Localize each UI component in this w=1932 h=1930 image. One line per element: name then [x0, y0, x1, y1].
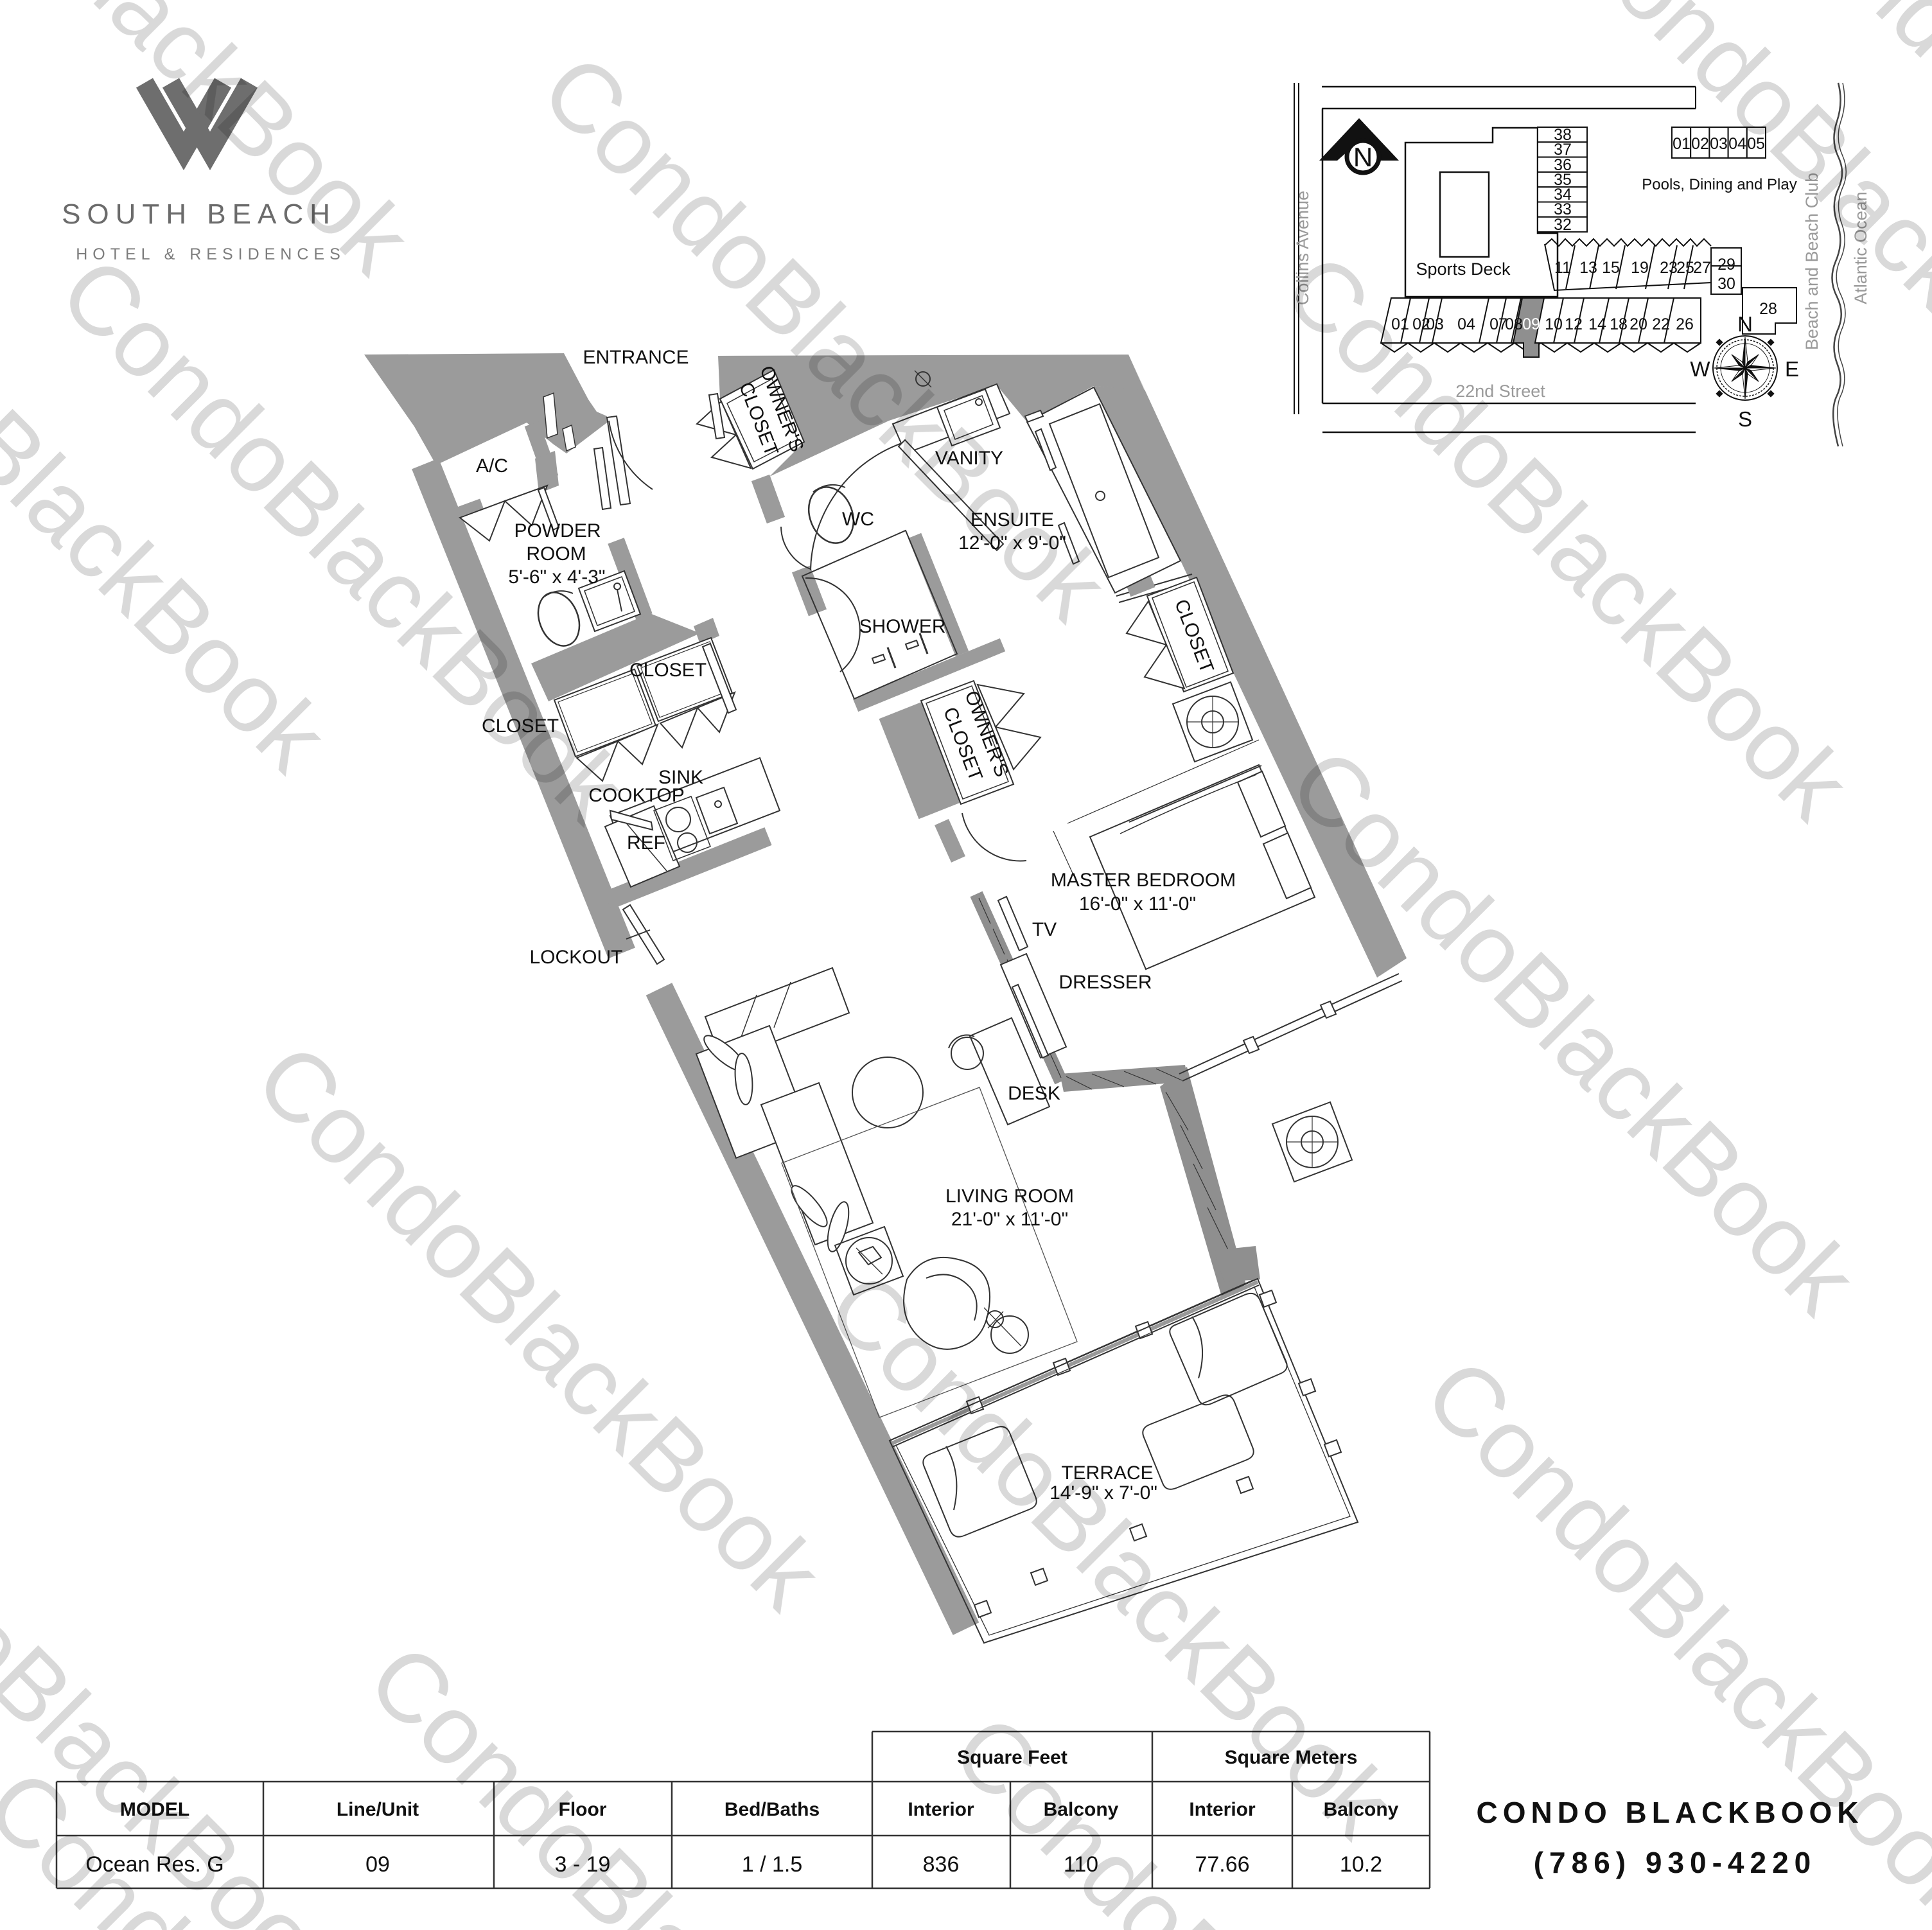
- svg-text:23: 23: [1660, 259, 1678, 277]
- svg-text:01: 01: [1673, 135, 1690, 153]
- svg-text:08: 08: [1505, 315, 1523, 333]
- svg-text:20: 20: [1629, 315, 1647, 333]
- svg-text:5'-6" x 4'-3": 5'-6" x 4'-3": [508, 566, 605, 588]
- svg-text:A/C: A/C: [476, 455, 508, 477]
- svg-text:30: 30: [1717, 275, 1735, 293]
- svg-text:SHOWER: SHOWER: [859, 616, 946, 637]
- svg-text:E: E: [1785, 357, 1799, 381]
- svg-text:DESK: DESK: [1008, 1083, 1060, 1104]
- svg-text:09: 09: [365, 1852, 390, 1877]
- svg-text:W: W: [1690, 357, 1710, 381]
- svg-text:77.66: 77.66: [1195, 1852, 1249, 1877]
- svg-text:19: 19: [1631, 259, 1649, 277]
- svg-text:DRESSER: DRESSER: [1058, 972, 1152, 993]
- svg-text:WC: WC: [842, 509, 874, 530]
- svg-text:12: 12: [1565, 315, 1583, 333]
- svg-text:14: 14: [1588, 315, 1606, 333]
- svg-text:03: 03: [1710, 135, 1728, 153]
- svg-text:ENTRANCE: ENTRANCE: [583, 347, 689, 368]
- svg-text:25: 25: [1676, 259, 1694, 277]
- svg-text:22: 22: [1652, 315, 1670, 333]
- svg-text:Interior: Interior: [1189, 1799, 1256, 1820]
- svg-text:28: 28: [1759, 300, 1777, 318]
- svg-text:LOCKOUT: LOCKOUT: [529, 947, 622, 968]
- svg-text:29: 29: [1717, 256, 1735, 274]
- svg-text:10: 10: [1545, 315, 1563, 333]
- svg-text:15: 15: [1602, 259, 1620, 277]
- svg-text:13: 13: [1579, 259, 1597, 277]
- svg-text:32: 32: [1554, 216, 1572, 234]
- svg-text:27: 27: [1693, 259, 1711, 277]
- svg-text:11: 11: [1554, 259, 1571, 277]
- svg-text:09: 09: [1522, 315, 1540, 333]
- svg-text:CLOSET: CLOSET: [629, 660, 707, 681]
- svg-text:ROOM: ROOM: [526, 543, 586, 565]
- svg-text:04: 04: [1457, 315, 1475, 333]
- svg-text:LIVING ROOM: LIVING ROOM: [945, 1186, 1074, 1207]
- svg-text:MASTER BEDROOM: MASTER BEDROOM: [1051, 870, 1236, 891]
- svg-text:02: 02: [1691, 135, 1709, 153]
- svg-text:18: 18: [1610, 315, 1628, 333]
- svg-text:16'-0" x 11'-0": 16'-0" x 11'-0": [1079, 893, 1196, 915]
- svg-text:N: N: [1353, 142, 1373, 172]
- svg-text:(786) 930-4220: (786) 930-4220: [1534, 1846, 1817, 1879]
- svg-text:Sports Deck: Sports Deck: [1416, 259, 1511, 279]
- svg-text:REF: REF: [627, 832, 665, 854]
- svg-text:TV: TV: [1032, 919, 1057, 940]
- svg-text:Line/Unit: Line/Unit: [337, 1799, 419, 1820]
- svg-text:S: S: [1738, 407, 1752, 431]
- svg-text:1 / 1.5: 1 / 1.5: [742, 1852, 803, 1877]
- svg-text:N: N: [1737, 312, 1753, 336]
- svg-text:26: 26: [1676, 315, 1694, 333]
- svg-text:836: 836: [923, 1852, 960, 1877]
- svg-text:POWDER: POWDER: [514, 520, 601, 541]
- svg-text:Bed/Baths: Bed/Baths: [724, 1799, 820, 1820]
- svg-text:10.2: 10.2: [1340, 1852, 1382, 1877]
- svg-text:21'-0" x 11'-0": 21'-0" x 11'-0": [951, 1209, 1068, 1230]
